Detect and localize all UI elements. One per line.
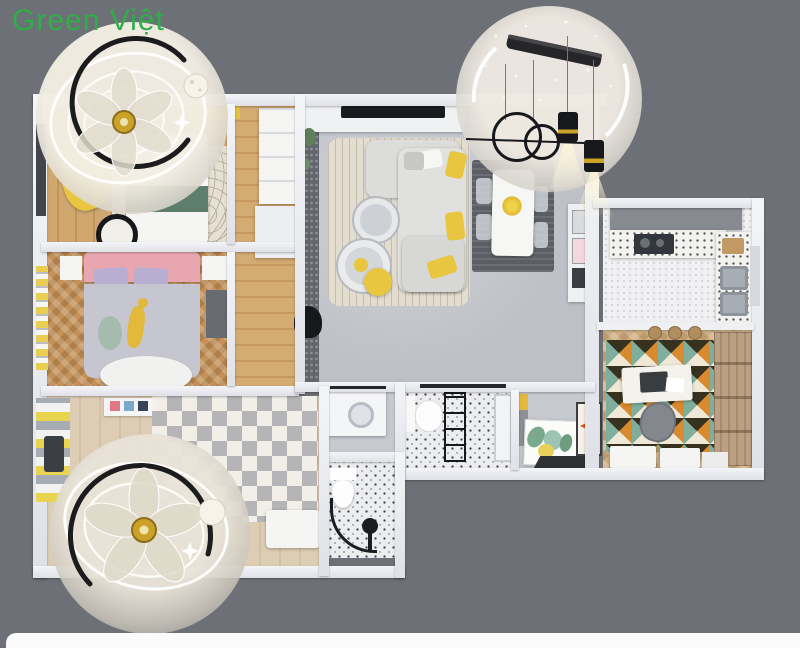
bar-stool-1 bbox=[648, 326, 662, 340]
kids-curtain bbox=[36, 266, 48, 370]
wall-bath2-top bbox=[319, 452, 403, 462]
sliding-door-track-1 bbox=[420, 384, 506, 388]
washer-drum bbox=[348, 402, 374, 428]
bath-vanity bbox=[494, 394, 512, 462]
pendant-wire-1 bbox=[505, 64, 506, 120]
towel-ladder-rack bbox=[444, 392, 466, 462]
cylinder-pendant-2 bbox=[584, 140, 604, 172]
pillow-yellow-2 bbox=[445, 211, 466, 241]
flower-centerpiece bbox=[502, 196, 522, 216]
wall-bottom-right bbox=[395, 468, 764, 480]
dining-chair-2 bbox=[476, 214, 492, 240]
papers bbox=[665, 377, 684, 393]
drawer-unit-1 bbox=[610, 446, 656, 468]
wall-kitchen-top bbox=[593, 198, 762, 208]
toy-pink bbox=[110, 401, 120, 411]
wardrobe-shelf-3 bbox=[714, 430, 752, 433]
bar-stool-2 bbox=[668, 326, 682, 340]
laptop bbox=[639, 371, 668, 392]
pendant-wire-3 bbox=[567, 36, 568, 112]
kids-giraffe-head bbox=[138, 298, 148, 308]
kids-nightstand-right bbox=[202, 256, 228, 280]
toy-navy bbox=[138, 401, 148, 411]
cylinder-pendant-1 bbox=[558, 112, 578, 142]
ceiling-arc-left bbox=[474, 48, 496, 102]
sink-basin-1 bbox=[720, 266, 748, 290]
storage-box bbox=[702, 452, 728, 468]
ceiling-arc-right bbox=[606, 64, 627, 136]
burner-2 bbox=[656, 239, 664, 247]
wardrobe-shelf-2 bbox=[714, 396, 752, 399]
wall-bath1-entry bbox=[511, 390, 519, 470]
study-wardrobe bbox=[714, 332, 752, 466]
wall-master-kids bbox=[41, 242, 299, 252]
wall-master-hall bbox=[227, 104, 235, 244]
coffee-table-1 bbox=[352, 196, 400, 244]
hall-wardrobe bbox=[259, 108, 297, 204]
cutting-board bbox=[722, 238, 744, 254]
kids-duvet-leaf-print bbox=[98, 316, 122, 350]
bottom-white-band bbox=[6, 633, 800, 648]
toilet-bowl-1 bbox=[415, 400, 443, 432]
wall-bath2-right bbox=[395, 452, 405, 578]
pendant-wire-4 bbox=[593, 60, 594, 140]
wall-bath2-left bbox=[319, 386, 329, 576]
ceiling-fan-light-icon-2 bbox=[50, 434, 250, 634]
table-tray bbox=[354, 258, 368, 272]
pendant-wire-2 bbox=[533, 60, 534, 122]
wall-hall-living bbox=[295, 94, 305, 394]
callout-linear-pendant-light bbox=[456, 6, 642, 192]
pillow-gray bbox=[404, 152, 424, 170]
wall-kids-wardrobe bbox=[41, 386, 299, 396]
tv-screen bbox=[341, 106, 445, 118]
watermark-text: Green Việt bbox=[12, 4, 165, 38]
dining-chair-4 bbox=[534, 222, 548, 248]
apartment-3d-floorplan: Green Việt bbox=[0, 0, 800, 648]
moon-lamp bbox=[199, 499, 225, 525]
callout-ceiling-fan-light-2 bbox=[50, 434, 250, 634]
burner-1 bbox=[640, 238, 650, 248]
kitchen-upper-cabinets bbox=[610, 206, 742, 230]
yellow-pouf bbox=[364, 268, 392, 296]
bar-stool-3 bbox=[688, 326, 702, 340]
callout-ceiling-fan-light-1 bbox=[36, 22, 228, 214]
linear-pendant-light-icon bbox=[456, 6, 642, 192]
kitchen-window bbox=[750, 246, 760, 306]
ceiling-fan-light-icon bbox=[36, 22, 228, 214]
sliding-door-track-2 bbox=[330, 386, 386, 389]
dresser-bench bbox=[266, 510, 320, 548]
shower-stem-2 bbox=[368, 532, 372, 550]
wall-kids-hall bbox=[227, 252, 235, 386]
moon-lamp bbox=[184, 74, 208, 98]
toy-blue bbox=[124, 401, 134, 411]
kids-nightstand-left bbox=[60, 256, 82, 280]
black-bar-light bbox=[506, 34, 603, 68]
wall-right bbox=[752, 198, 764, 478]
sink-basin-2 bbox=[720, 292, 748, 316]
drawer-unit-2 bbox=[660, 448, 700, 468]
sparkle-icon bbox=[174, 114, 191, 131]
wardrobe-shelf-1 bbox=[714, 362, 752, 365]
toilet-tank-2 bbox=[328, 468, 356, 480]
